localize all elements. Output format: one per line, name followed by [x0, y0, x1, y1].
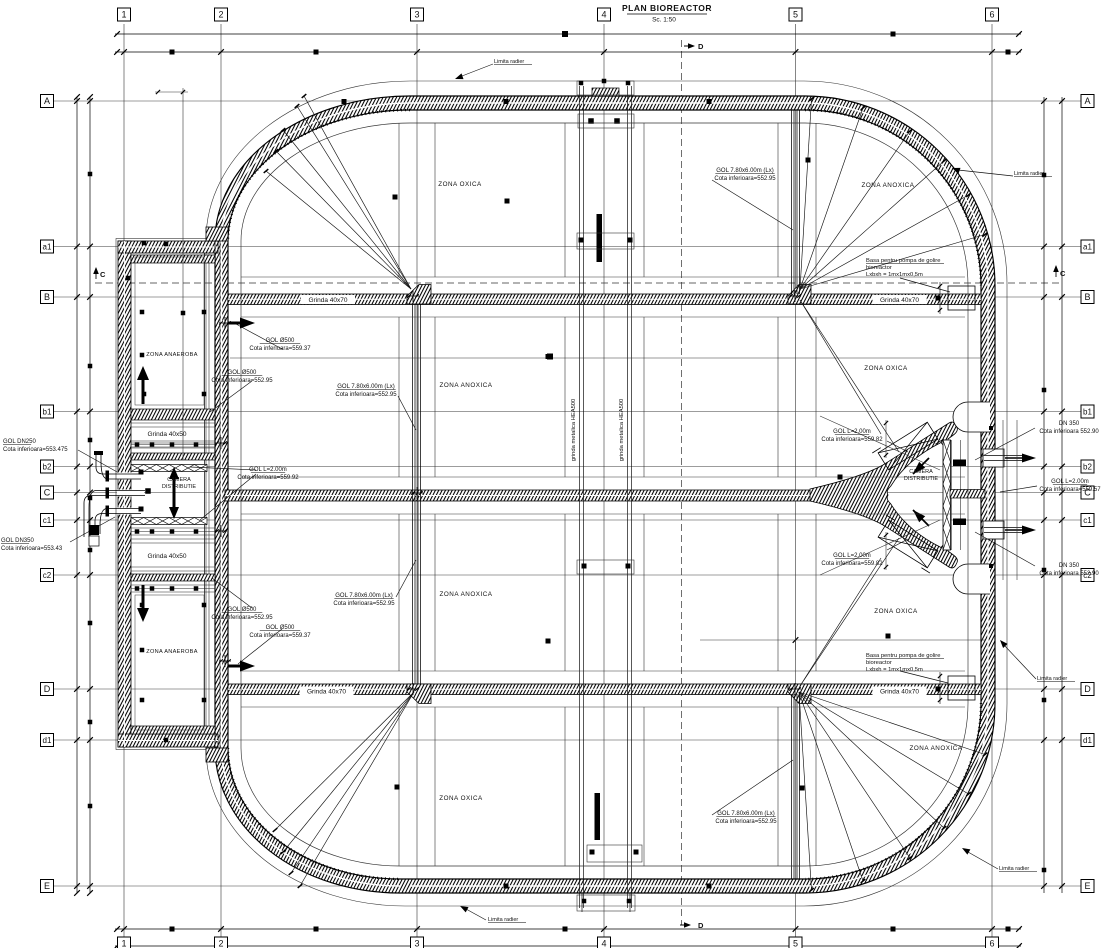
svg-text:D: D	[1084, 684, 1091, 694]
svg-text:b1: b1	[43, 408, 52, 417]
svg-text:Limita radier: Limita radier	[494, 59, 524, 65]
svg-text:D: D	[44, 684, 51, 694]
svg-text:GOL L=2.00m: GOL L=2.00m	[833, 553, 871, 559]
svg-text:ZONA OXICA: ZONA OXICA	[439, 795, 483, 802]
svg-text:4: 4	[601, 939, 606, 948]
svg-text:Cota inferioara=552.95: Cota inferioara=552.95	[335, 392, 397, 398]
svg-text:C: C	[100, 270, 106, 279]
svg-text:E: E	[1084, 881, 1090, 891]
svg-text:Basa pentru pompa de golire: Basa pentru pompa de golire	[866, 653, 940, 659]
svg-text:c1: c1	[1083, 516, 1092, 525]
svg-text:DISTRIBUTIE: DISTRIBUTIE	[162, 484, 197, 490]
svg-text:ZONA OXICA: ZONA OXICA	[874, 608, 918, 615]
svg-text:Cota inferioara 552.90: Cota inferioara 552.90	[1039, 429, 1099, 435]
svg-text:GOL 7.80x6.00m (Lx): GOL 7.80x6.00m (Lx)	[716, 168, 773, 174]
svg-text:2: 2	[218, 10, 223, 20]
svg-text:GOL L=2.00m: GOL L=2.00m	[833, 429, 871, 435]
svg-text:Cota inferioara=553.475: Cota inferioara=553.475	[3, 447, 68, 453]
svg-text:grinda metalica HEA500: grinda metalica HEA500	[619, 399, 625, 462]
svg-text:c1: c1	[43, 516, 52, 525]
svg-text:DISTRIBUTIE: DISTRIBUTIE	[904, 476, 939, 482]
svg-text:Grinda 40x50: Grinda 40x50	[147, 431, 186, 438]
svg-text:GOL Ø500: GOL Ø500	[266, 625, 295, 631]
svg-text:GOL L=2.00m: GOL L=2.00m	[1051, 479, 1089, 485]
svg-text:ZONA ANAEROBA: ZONA ANAEROBA	[146, 352, 197, 358]
svg-text:GOL 7.80x6.00m (Lx): GOL 7.80x6.00m (Lx)	[335, 593, 392, 599]
svg-text:Limita radier: Limita radier	[1014, 171, 1044, 177]
svg-text:Grinda 40x70: Grinda 40x70	[880, 689, 919, 696]
svg-text:bioreactor: bioreactor	[866, 660, 892, 666]
svg-text:Cota inferioara=552.95: Cota inferioara=552.95	[714, 176, 776, 182]
svg-text:Cota inferioara=559.37: Cota inferioara=559.37	[249, 346, 311, 352]
svg-text:Cota inferioara 552.90: Cota inferioara 552.90	[1039, 571, 1099, 577]
svg-text:Grinda 40x50: Grinda 40x50	[147, 553, 186, 560]
svg-text:Cota inferioara=559.37: Cota inferioara=559.37	[249, 633, 311, 639]
svg-text:A: A	[44, 96, 50, 106]
svg-text:1: 1	[121, 939, 126, 948]
svg-text:3: 3	[414, 10, 419, 20]
svg-text:GOL Ø500: GOL Ø500	[228, 607, 257, 613]
svg-text:B: B	[44, 292, 50, 302]
svg-text:a1: a1	[1083, 243, 1092, 252]
svg-text:GOL L=2.00m: GOL L=2.00m	[249, 467, 287, 473]
svg-text:GOL Ø500: GOL Ø500	[228, 370, 257, 376]
svg-text:DN 350: DN 350	[1059, 421, 1080, 427]
svg-text:B: B	[1084, 292, 1090, 302]
svg-text:6: 6	[989, 10, 994, 20]
svg-text:Limita radier: Limita radier	[488, 917, 518, 923]
svg-text:A: A	[1084, 96, 1090, 106]
svg-text:ZONA OXICA: ZONA OXICA	[864, 365, 908, 372]
svg-text:C: C	[44, 488, 51, 498]
svg-text:GOL 7.80x6.00m (Lx): GOL 7.80x6.00m (Lx)	[717, 811, 774, 817]
svg-text:Lxbxh = 1mx1mx0,5m: Lxbxh = 1mx1mx0,5m	[866, 272, 923, 278]
svg-text:Cota inferioara=559.57: Cota inferioara=559.57	[1039, 487, 1101, 493]
svg-text:Sc. 1:50: Sc. 1:50	[652, 17, 676, 24]
svg-text:Cota inferioara=559.92: Cota inferioara=559.92	[237, 475, 299, 481]
svg-text:Limita radier: Limita radier	[999, 866, 1029, 872]
svg-text:E: E	[44, 881, 50, 891]
svg-text:D: D	[698, 42, 704, 51]
svg-text:a1: a1	[43, 243, 52, 252]
svg-text:GOL Ø500: GOL Ø500	[266, 338, 295, 344]
svg-text:d1: d1	[43, 736, 52, 745]
svg-text:ZONA ANOXICA: ZONA ANOXICA	[862, 182, 915, 189]
svg-text:ZONA ANOXICA: ZONA ANOXICA	[910, 745, 963, 752]
svg-text:bioreactor: bioreactor	[866, 265, 892, 271]
svg-text:CAMERA: CAMERA	[909, 469, 933, 475]
svg-text:grinda metalica HEA500: grinda metalica HEA500	[571, 399, 577, 462]
svg-text:ZONA ANAEROBA: ZONA ANAEROBA	[146, 649, 197, 655]
svg-text:b2: b2	[43, 463, 52, 472]
svg-text:6: 6	[989, 939, 994, 948]
svg-text:ZONA ANOXICA: ZONA ANOXICA	[440, 591, 493, 598]
svg-text:Grinda 40x70: Grinda 40x70	[307, 689, 346, 696]
svg-text:5: 5	[793, 939, 798, 948]
svg-text:b1: b1	[1083, 408, 1092, 417]
svg-text:GOL 7.80x6.00m (Lx): GOL 7.80x6.00m (Lx)	[337, 384, 394, 390]
svg-text:Grinda 40x70: Grinda 40x70	[880, 297, 919, 304]
svg-text:Basa pentru pompa de golire: Basa pentru pompa de golire	[866, 258, 940, 264]
svg-text:d1: d1	[1083, 736, 1092, 745]
svg-text:5: 5	[793, 10, 798, 20]
svg-text:Limita radier: Limita radier	[1037, 676, 1067, 682]
svg-text:Lxbxh = 1mx1mx0,5m: Lxbxh = 1mx1mx0,5m	[866, 667, 923, 673]
svg-text:3: 3	[414, 939, 419, 948]
svg-text:ZONA OXICA: ZONA OXICA	[438, 181, 482, 188]
svg-text:Cota inferioara=552.95: Cota inferioara=552.95	[211, 378, 273, 384]
svg-text:Grinda 40x70: Grinda 40x70	[308, 297, 347, 304]
svg-text:GOL DN350: GOL DN350	[1, 538, 34, 544]
svg-text:c2: c2	[43, 571, 52, 580]
svg-text:1: 1	[121, 10, 126, 20]
svg-text:Cota inferioara=552.95: Cota inferioara=552.95	[715, 819, 777, 825]
svg-text:b2: b2	[1083, 463, 1092, 472]
svg-text:Cota inferioara=559.82: Cota inferioara=559.82	[821, 561, 883, 567]
svg-text:PLAN BIOREACTOR: PLAN BIOREACTOR	[622, 3, 712, 13]
svg-text:Cota inferioara=552.95: Cota inferioara=552.95	[333, 601, 395, 607]
svg-text:C: C	[1060, 269, 1066, 278]
svg-text:GOL DN250: GOL DN250	[3, 439, 36, 445]
svg-text:DN 350: DN 350	[1059, 563, 1080, 569]
svg-text:Cota inferioara=559.82: Cota inferioara=559.82	[821, 437, 883, 443]
svg-text:4: 4	[601, 10, 606, 20]
svg-text:ZONA ANOXICA: ZONA ANOXICA	[440, 382, 493, 389]
svg-text:CAMERA: CAMERA	[167, 477, 191, 483]
svg-text:Cota inferioara=552.95: Cota inferioara=552.95	[211, 615, 273, 621]
svg-text:Cota inferioara=553.43: Cota inferioara=553.43	[1, 546, 63, 552]
svg-text:2: 2	[218, 939, 223, 948]
svg-text:D: D	[698, 921, 704, 930]
